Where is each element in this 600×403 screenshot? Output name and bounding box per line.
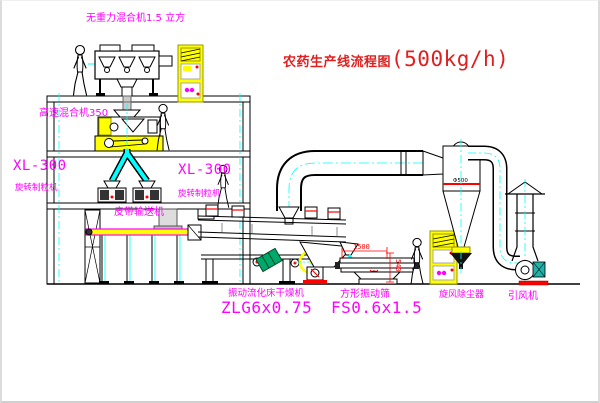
granulator-center-name: 旋转制粒机 [178, 190, 221, 199]
indicator-light-icon [197, 93, 200, 96]
diagram-title: 农药生产线流程图(500kg/h) [283, 47, 509, 71]
conveyor-legs [99, 235, 184, 284]
belt-conveyor-machine [86, 209, 201, 284]
screen-model-label: FS0.6x1.5 [331, 299, 422, 317]
screen-height-dim: 540 [394, 259, 402, 272]
dryer-motor [303, 267, 327, 284]
diagram-title-capacity: (500kg/h) [391, 47, 509, 71]
granulator-left-model: XL-300 [13, 159, 67, 174]
dryer-model-label: ZLG6x0.75 [221, 299, 312, 317]
diagram-title-text: 农药生产线流程图 [283, 55, 391, 70]
exhaust-duct [279, 151, 443, 224]
process-flow-diagram: 1500 540 Φ500 [0, 0, 600, 403]
cyclone-inlet-taper [423, 151, 443, 175]
granulator-left-name: 旋转制粒机 [15, 184, 58, 193]
person-figure-top-floor [74, 46, 87, 96]
belt-conveyor-label: 皮带输送机 [114, 207, 164, 218]
control-cabinet-top [178, 45, 203, 102]
control-cabinet-right [430, 231, 457, 284]
high-speed-mixer-label: 高速混合机350 [39, 108, 108, 119]
indicator-light-icon [196, 66, 199, 69]
induced-draft-fan [516, 261, 549, 286]
cyclone-label: 旋风除尘器 [439, 291, 484, 301]
gravity-mixer-label: 无重力混合机1.5 立方 [86, 13, 185, 24]
fan-label: 引风机 [508, 291, 538, 302]
indicator-light-icon [451, 269, 454, 272]
screen-length-dim: 1500 [353, 243, 370, 251]
fluid-bed-dryer-machine [198, 205, 358, 284]
granulator-machines [98, 188, 161, 202]
granulator-center-model: XL-300 [178, 163, 232, 178]
sample-drum-icon [256, 248, 282, 271]
